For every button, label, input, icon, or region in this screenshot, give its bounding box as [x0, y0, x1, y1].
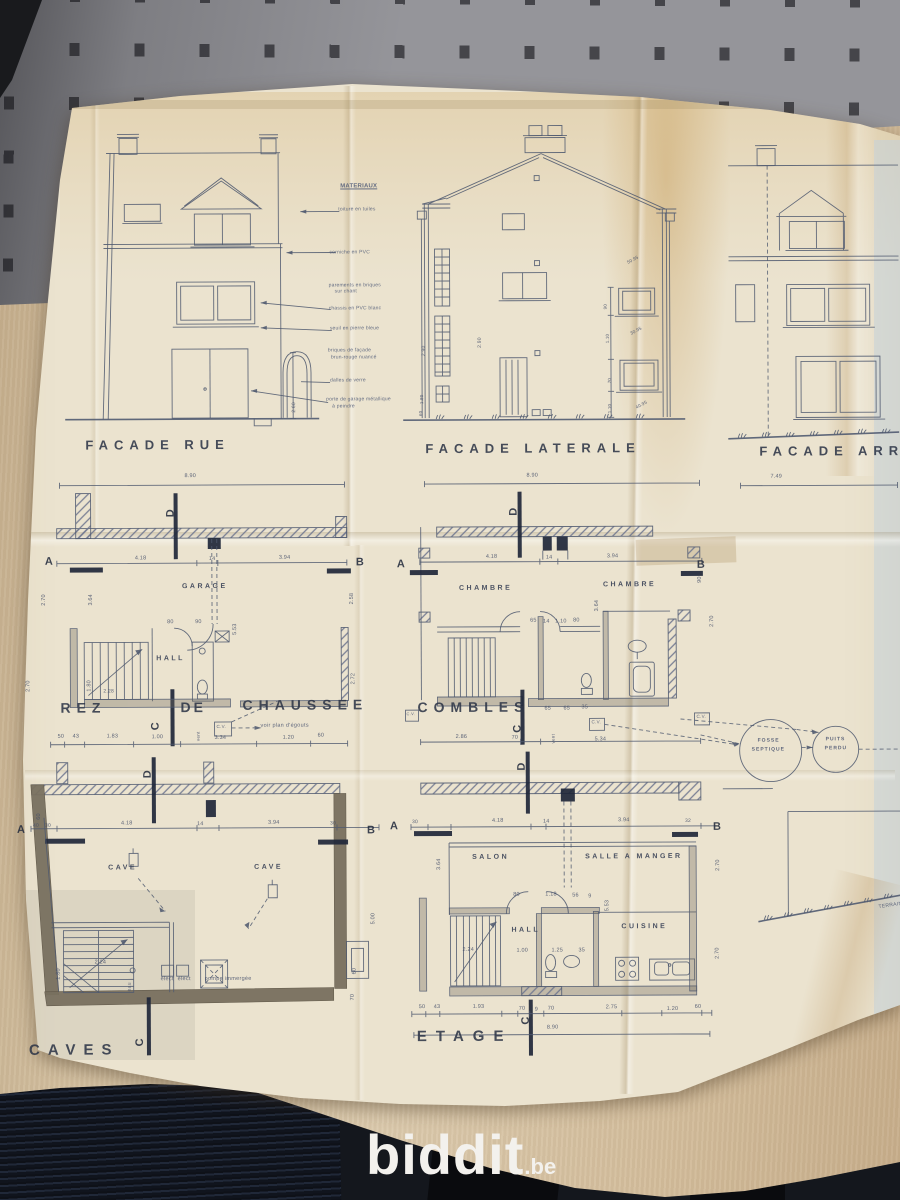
room-label: GARAGE [182, 583, 228, 590]
dimension-label: 8.90 [526, 474, 538, 480]
dimension-label: 4.18 [121, 821, 133, 827]
dimension-label: 7.49 [770, 475, 782, 481]
room-label: HALL [156, 655, 185, 662]
room-label: SALON [472, 854, 509, 861]
dimension-label: 30 [412, 820, 418, 825]
section-letter: A [390, 821, 398, 832]
dimension-label: 14 [209, 557, 216, 563]
room-label: CAVE [254, 864, 283, 871]
dimension-label: 1.80 [57, 968, 63, 980]
dimension-label: 70 [548, 1007, 555, 1013]
dimension-label: 3.64 [437, 859, 443, 871]
dimension-label: 1.00 [152, 735, 164, 741]
dimension-label: 70 [351, 994, 357, 1001]
biddit-logo-tld: .be [524, 1154, 556, 1179]
section-letter: B [367, 825, 375, 836]
dimension-label: 3.94 [607, 554, 619, 560]
dimension-label: 14 [546, 556, 553, 562]
material-item: à peindre [332, 404, 355, 409]
dimension-label: 60 [419, 411, 424, 416]
drawing-title: FACADE ARR [759, 444, 900, 458]
section-letter: B [697, 560, 705, 571]
dimension-label: 3.34 [215, 736, 227, 742]
biddit-logo: biddit.be [366, 1122, 556, 1187]
material-item: seuil en pierre bleue [330, 326, 379, 331]
dimension-label: 60 [37, 813, 43, 820]
drawing-title: ETAGE [417, 1029, 513, 1044]
dimension-label: 14 [197, 822, 204, 828]
dimension-label: 60 [695, 1005, 702, 1011]
annotation-label: vent [197, 731, 202, 741]
dimension-label: 2.70 [26, 680, 32, 692]
dimension-label: 65 [563, 706, 570, 712]
dimension-label: 40.95 [635, 400, 648, 410]
dimension-label: 2.28 [103, 689, 114, 694]
drawing-title: FACADE LATERALE [425, 441, 640, 455]
dimension-label: 2.70 [716, 947, 722, 959]
dimension-label: 1.20 [667, 1007, 679, 1013]
annotation-label: élect [178, 977, 191, 983]
dimension-label: 56 [572, 893, 579, 899]
section-letter: C [513, 725, 524, 733]
dimension-label: 4.18 [135, 556, 147, 562]
annotation-label: C.V. [697, 715, 707, 720]
dimension-label: 2.70 [716, 859, 722, 871]
dimension-label: 1.80 [420, 395, 425, 405]
material-item: MATERIAUX [340, 183, 377, 189]
dimension-label: 32 [685, 819, 691, 824]
dimension-label: 80 [513, 893, 520, 899]
room-label: SALLE A MANGER [585, 853, 683, 860]
dimension-label: 65 [544, 707, 551, 713]
section-letter: D [517, 763, 528, 771]
drawing-title: COMBLES [417, 700, 529, 714]
dimension-label: 90 [698, 576, 704, 583]
dimension-label: 80 [573, 618, 580, 624]
drawing-title: CAVES [29, 1042, 120, 1057]
dimension-label: 1.10 [606, 334, 611, 344]
dimension-label: 3.64 [89, 594, 95, 606]
dimension-label: 70 [519, 1007, 526, 1013]
dimension-label: 90 [604, 304, 609, 309]
section-letter: A [397, 559, 405, 570]
annotation-label: élect [161, 977, 174, 983]
dimension-label: 30 [45, 824, 51, 829]
material-item: briques de façade [328, 348, 371, 353]
material-item: chassis en PVC blanc [329, 306, 382, 311]
annotation-label: C.V. [217, 725, 227, 730]
section-letter: D [166, 509, 177, 517]
plan-labels: FACADE RUEFACADE LATERALEFACADE ARRREZDE… [0, 0, 900, 1200]
drawing-title: DE [180, 700, 206, 714]
dimension-label: 14 [543, 820, 550, 826]
dimension-label: 70 [608, 378, 613, 383]
dimension-label: 80 [167, 620, 174, 626]
dimension-label: 14 [543, 620, 550, 626]
dimension-label: 70 [512, 736, 519, 742]
drawing-title: CHAUSSEE [242, 697, 368, 712]
annotation-label: TERRAIN [878, 902, 900, 910]
section-letter: D [509, 508, 520, 516]
dimension-label: 35 [579, 948, 586, 954]
dimension-label: 2.72 [351, 673, 357, 685]
material-item: dalles de verre [330, 378, 366, 383]
dimension-label: 50 [419, 1005, 426, 1011]
dimension-label: 2.70 [710, 615, 716, 627]
dimension-label: 1.83 [107, 734, 119, 740]
dimension-label: 30 [330, 821, 336, 826]
dimension-label: 1.25 [552, 949, 564, 955]
material-item: brun-rouge nuancé [331, 355, 377, 360]
dimension-label: 4.18 [486, 555, 498, 561]
dimension-label: 1.18 [545, 893, 557, 899]
material-item: porte de garage métallique [326, 397, 391, 402]
annotation-label: PUITS [826, 737, 846, 742]
dimension-label: 5.00 [371, 913, 377, 925]
section-letter: C [135, 1038, 146, 1046]
room-label: CHAMBRE [459, 585, 512, 592]
dimension-label: 8.90 [184, 474, 196, 480]
dimension-label: 1.93 [473, 1005, 485, 1011]
dimension-label: 5.34 [595, 737, 607, 743]
dimension-label: 4.18 [492, 819, 504, 825]
annotation-label: voir plan d'égouts [261, 724, 309, 730]
drawing-title: FACADE RUE [85, 438, 230, 452]
dimension-label: 2.24 [463, 948, 475, 954]
dimension-label: 2.70 [42, 594, 48, 606]
dimension-label: 9 [535, 1008, 538, 1014]
dimension-label: 43 [434, 1005, 441, 1011]
room-label: CAVE [108, 864, 137, 871]
dimension-label: 50 [58, 735, 65, 741]
dimension-label: 43 [73, 735, 80, 741]
annotation-label: C.V. [406, 712, 415, 716]
dimension-label: 9 [588, 894, 591, 900]
dimension-label: 40 [33, 824, 39, 829]
dimension-label: 3.94 [279, 556, 291, 562]
room-label: CUISINE [621, 923, 667, 930]
dimension-label: 2.60 [292, 402, 297, 413]
material-item: toiture en tuiles [338, 207, 375, 212]
dimension-label: 60 [318, 734, 325, 740]
dimension-label: 1.00 [517, 949, 529, 955]
dimension-label: 2.58 [350, 593, 356, 605]
room-label: CHAMBRE [603, 581, 656, 588]
dimension-label: 65 [530, 619, 537, 625]
section-letter: A [45, 557, 53, 568]
dimension-label: 1.10 [555, 619, 567, 625]
dimension-label: 50.95 [627, 255, 640, 265]
dimension-label: 35 [581, 705, 588, 711]
dimension-label: 1.80 [87, 680, 93, 692]
annotation-label: C.V. [592, 720, 602, 725]
dimension-label: 2.86 [456, 735, 468, 741]
biddit-logo-brand: biddit [366, 1123, 524, 1186]
section-letter: B [356, 557, 364, 568]
section-letter: C [521, 1017, 532, 1025]
dimension-label: 3.94 [618, 818, 630, 824]
drawing-title: REZ [60, 701, 106, 715]
annotation-label: PERDU [825, 746, 848, 751]
annotation-label: vent [552, 734, 557, 744]
dimension-label: 2.90 [422, 346, 427, 357]
annotation-label: pompe immergée [205, 977, 252, 983]
material-item: corniche en PVC [329, 250, 370, 255]
material-item: sur chant [335, 289, 357, 294]
dimension-label: 30.95 [630, 326, 643, 336]
section-letter: A [17, 825, 25, 836]
room-label: HALL [511, 927, 540, 934]
dimension-label: 2.90 [478, 337, 483, 348]
dimension-label: 3.94 [268, 821, 280, 827]
annotation-label: eau [128, 982, 133, 991]
section-letter: D [143, 770, 154, 778]
section-letter: C [151, 722, 162, 730]
dimension-label: 1.10 [608, 404, 613, 414]
dimension-label: 2.75 [606, 1005, 618, 1011]
dimension-label: 5.53 [233, 623, 239, 635]
section-letter: B [713, 822, 721, 833]
dimension-label: 8.90 [547, 1026, 559, 1032]
dimension-label: 1.20 [283, 736, 295, 742]
dimension-label: 3.64 [595, 600, 601, 612]
dimension-label: 90 [195, 620, 202, 626]
dimension-label: 5.53 [605, 900, 611, 912]
dimension-label: 60 [353, 968, 359, 975]
annotation-label: FOSSE [758, 739, 780, 744]
dimension-label: 2.24 [95, 961, 107, 967]
photo-scene: FACADE RUEFACADE LATERALEFACADE ARRREZDE… [0, 0, 900, 1200]
annotation-label: SEPTIQUE [752, 748, 785, 753]
